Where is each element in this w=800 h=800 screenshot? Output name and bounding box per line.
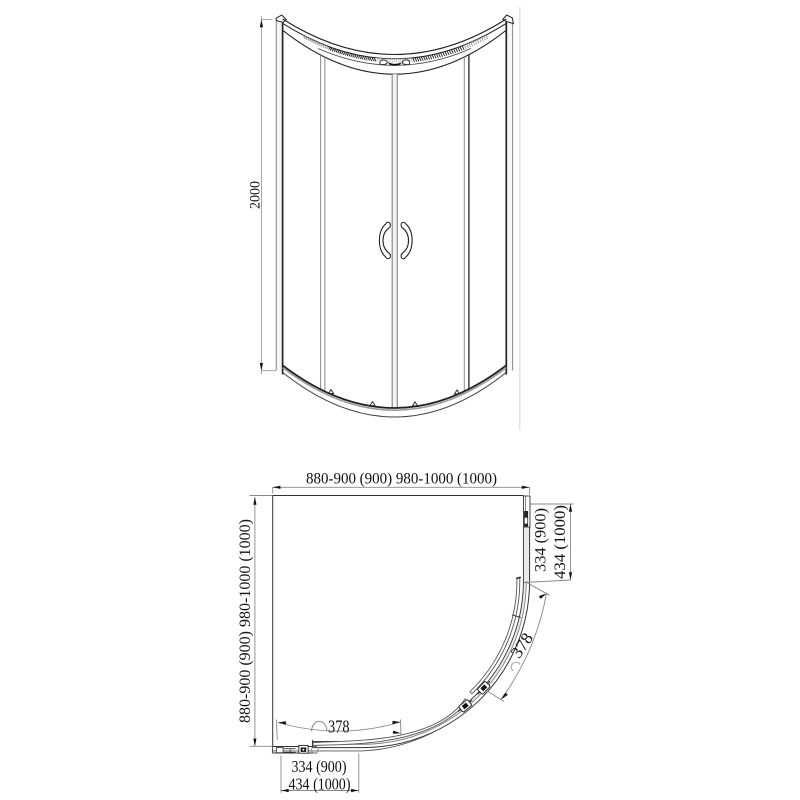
svg-text:378: 378	[328, 716, 350, 736]
svg-text:434 (1000): 434 (1000)	[289, 774, 351, 793]
svg-text:880-900 (900) 980-1000 (1000): 880-900 (900) 980-1000 (1000)	[237, 519, 254, 723]
svg-text:434 (1000): 434 (1000)	[552, 505, 569, 579]
svg-text:334 (900): 334 (900)	[292, 757, 347, 776]
svg-text:880-900 (900) 980-1000 (1000): 880-900 (900) 980-1000 (1000)	[306, 470, 497, 487]
svg-text:2000: 2000	[247, 181, 263, 209]
svg-text:334 (900): 334 (900)	[533, 508, 550, 572]
